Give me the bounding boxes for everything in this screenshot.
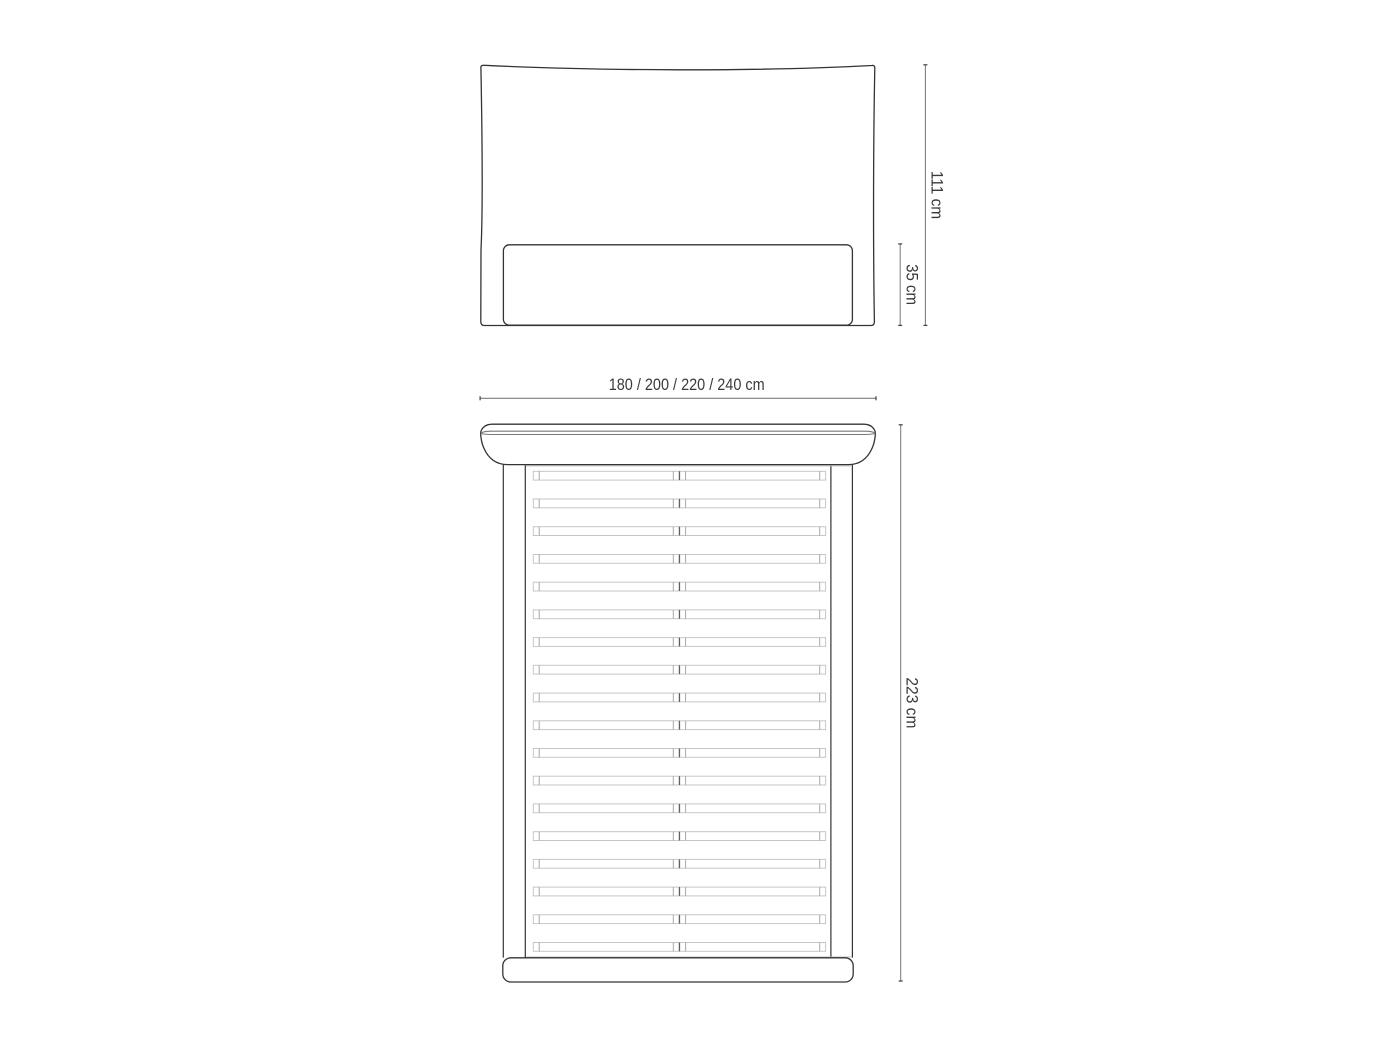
svg-text:35 cm: 35 cm bbox=[902, 264, 920, 305]
svg-text:223 cm: 223 cm bbox=[902, 677, 920, 728]
svg-text:111 cm: 111 cm bbox=[927, 171, 945, 219]
svg-text:180 / 200 / 220 / 240 cm: 180 / 200 / 220 / 240 cm bbox=[609, 376, 765, 394]
